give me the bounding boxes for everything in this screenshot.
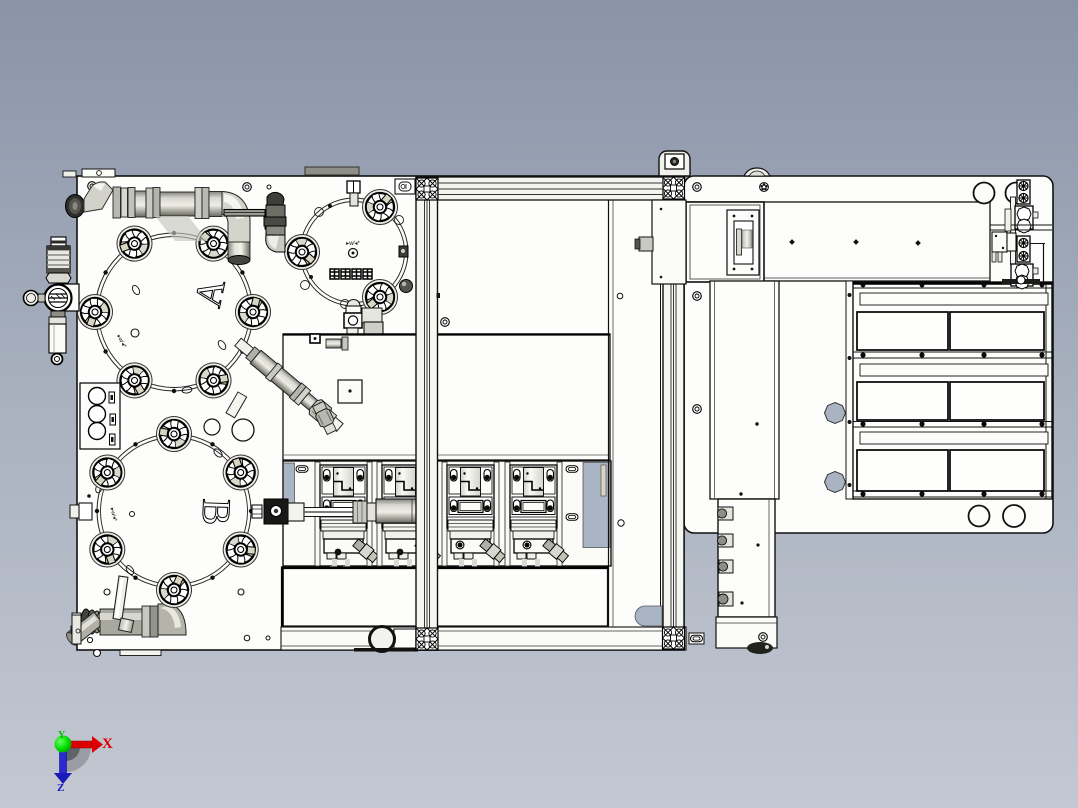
svg-text:Z: Z bbox=[57, 782, 64, 794]
svg-text:Y: Y bbox=[58, 730, 66, 741]
svg-text:B: B bbox=[194, 498, 240, 526]
svg-text:▸w⁄◂*: ▸w⁄◂* bbox=[346, 241, 360, 247]
svg-text:X: X bbox=[102, 736, 113, 752]
